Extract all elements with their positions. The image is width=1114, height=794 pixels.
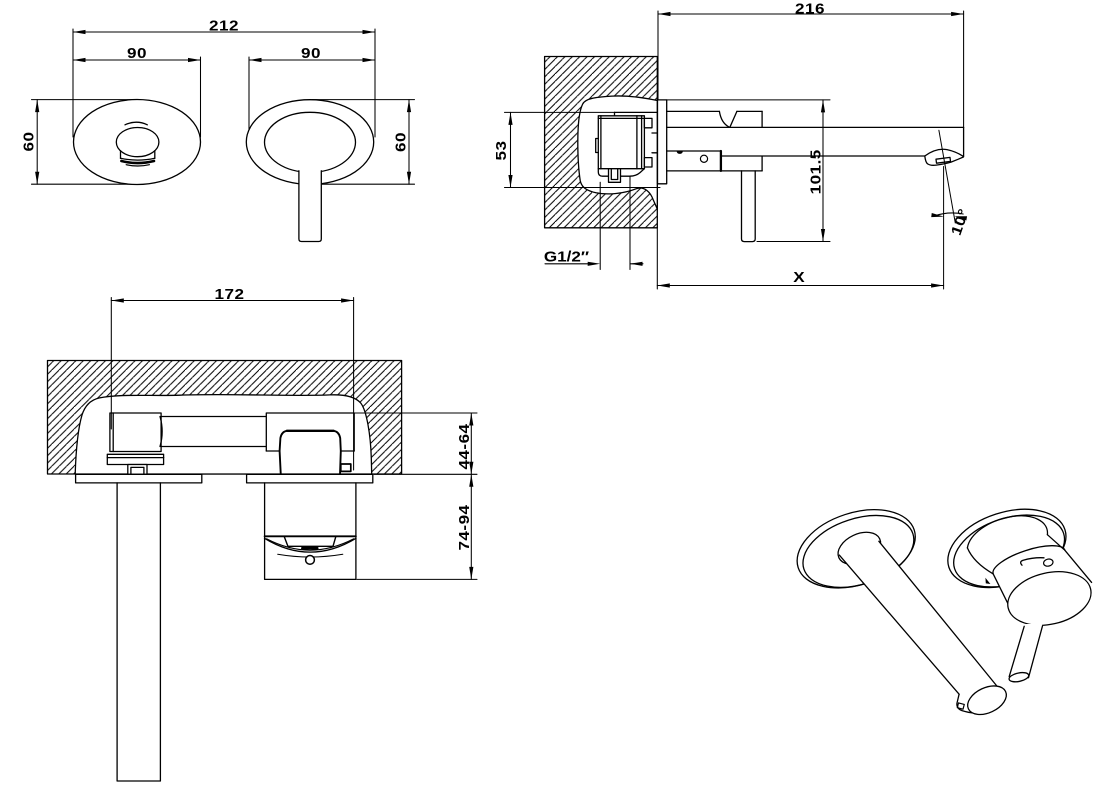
svg-text:44-64: 44-64: [457, 423, 473, 469]
svg-text:74-94: 74-94: [457, 504, 473, 550]
svg-text:G1/2″: G1/2″: [544, 250, 590, 266]
svg-text:10°: 10°: [949, 207, 973, 238]
svg-text:101.5: 101.5: [809, 149, 825, 194]
svg-text:212: 212: [209, 19, 239, 35]
svg-text:90: 90: [127, 46, 147, 62]
svg-text:172: 172: [215, 287, 245, 303]
svg-text:90: 90: [301, 46, 321, 62]
svg-text:216: 216: [795, 2, 825, 18]
svg-text:X: X: [793, 270, 805, 286]
svg-text:60: 60: [394, 132, 410, 152]
svg-text:60: 60: [22, 132, 38, 152]
svg-text:53: 53: [494, 141, 510, 161]
